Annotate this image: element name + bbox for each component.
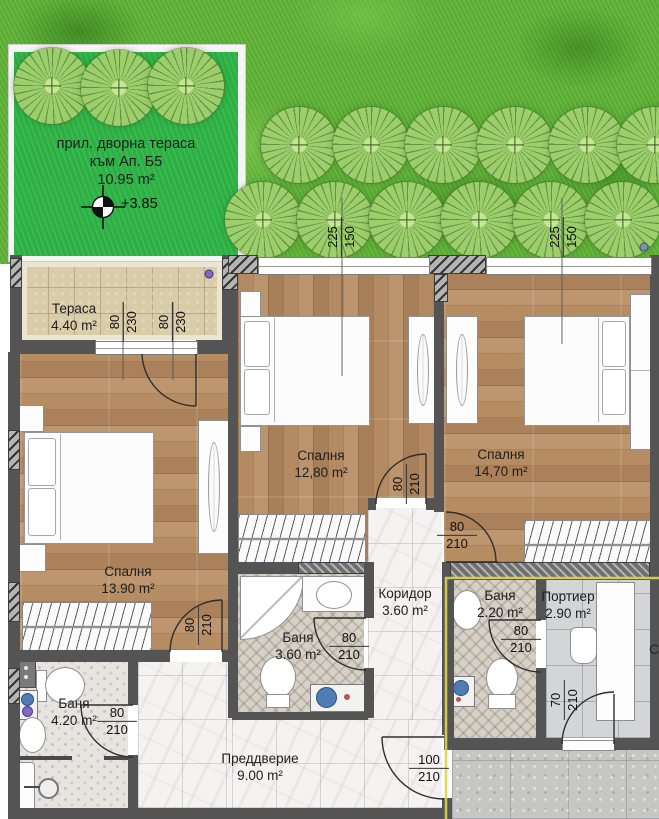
wall-segment bbox=[650, 255, 659, 750]
room-vestibule-left bbox=[138, 662, 232, 808]
knob-icon bbox=[21, 693, 34, 706]
tree-icon bbox=[369, 182, 445, 258]
room-label-bedroom-middle: Спалня12,80 m² bbox=[294, 448, 347, 482]
edge-cut-label: С bbox=[649, 641, 659, 657]
common-area bbox=[452, 750, 659, 819]
pillow bbox=[28, 488, 56, 536]
washer-drum-icon bbox=[316, 687, 337, 708]
wall-segment bbox=[364, 668, 374, 718]
floor-plan: прил. дворна тераса към Ап. Б5 10.95 m² … bbox=[0, 0, 659, 819]
wall-segment bbox=[10, 340, 96, 354]
chair bbox=[570, 627, 597, 664]
wall-segment bbox=[614, 738, 659, 750]
washer-drum-icon bbox=[453, 680, 469, 696]
tree-icon bbox=[441, 182, 517, 258]
room-label-bath-right: Баня2.20 m² bbox=[477, 588, 523, 622]
bed-divider bbox=[60, 434, 61, 540]
wall-segment bbox=[442, 692, 452, 735]
wall-segment bbox=[128, 662, 138, 705]
wall-cabinet bbox=[19, 660, 36, 688]
nightstand bbox=[18, 544, 46, 572]
wall-column bbox=[434, 274, 448, 302]
wall-segment bbox=[8, 808, 452, 819]
shower-head-icon bbox=[38, 778, 59, 799]
dim-bath-left-door: 80210 bbox=[97, 706, 137, 736]
dim-bedroom-middle-window: 225150 bbox=[326, 217, 356, 257]
wall-hatched-long bbox=[450, 562, 650, 580]
tree-icon bbox=[261, 107, 337, 183]
tree-icon bbox=[14, 48, 90, 124]
window-bedroom-middle bbox=[258, 257, 430, 275]
room-label-bath-middle: Баня3.60 m² bbox=[275, 630, 321, 664]
sink bbox=[19, 717, 46, 753]
dim-terrace-door: 80230 bbox=[108, 302, 138, 342]
tree-icon bbox=[81, 50, 157, 126]
dim-bedroom-right-window: 225150 bbox=[548, 217, 578, 257]
dim-terrace-window: 80230 bbox=[157, 302, 187, 342]
wall-segment bbox=[368, 498, 376, 510]
desk bbox=[596, 582, 635, 721]
room-label-corridor: Коридор3.60 m² bbox=[378, 586, 431, 620]
decor-leaf-icon bbox=[208, 442, 220, 532]
toilet-tank bbox=[488, 694, 516, 709]
door-threshold bbox=[562, 740, 616, 751]
tree-icon bbox=[617, 107, 659, 183]
bed-divider bbox=[598, 318, 599, 422]
wall-segment bbox=[364, 562, 374, 618]
room-label-terrace: Тераса4.40 m² bbox=[51, 301, 97, 335]
room-label-porter: Портиер2.90 m² bbox=[541, 589, 594, 623]
nightstand bbox=[18, 405, 44, 432]
room-label-vestibule: Преддверие9.00 m² bbox=[221, 751, 298, 785]
nightstand bbox=[240, 291, 261, 317]
wall-column bbox=[10, 258, 22, 288]
wall-segment bbox=[228, 352, 238, 718]
washer-knob-icon bbox=[456, 697, 461, 702]
dim-entry-door: 100210 bbox=[409, 753, 449, 783]
pillow bbox=[602, 321, 626, 367]
washer-knob-icon bbox=[344, 694, 350, 700]
shower-partition bbox=[104, 756, 130, 760]
dim-bedroom-left-door: 80210 bbox=[183, 605, 213, 645]
tree-icon bbox=[333, 107, 409, 183]
room-label-bedroom-right: Спалня14,70 m² bbox=[474, 447, 527, 481]
wardrobe bbox=[22, 602, 152, 652]
knob-icon bbox=[22, 706, 33, 717]
tree-icon bbox=[148, 48, 224, 124]
shower-partition bbox=[20, 756, 72, 760]
toilet bbox=[486, 658, 518, 698]
wall-segment bbox=[444, 738, 562, 750]
yard-terrace-label: прил. дворна тераса към Ап. Б5 10.95 m² bbox=[57, 135, 196, 189]
wall-column bbox=[8, 668, 20, 704]
dim-bath-middle-door: 80210 bbox=[329, 631, 369, 661]
shelf-line bbox=[631, 370, 651, 371]
dim-bedroom-right-door: 80210 bbox=[437, 520, 477, 550]
tree-icon bbox=[585, 182, 659, 258]
decor-leaf-icon bbox=[417, 334, 429, 406]
room-label-bedroom-left: Спалня13.90 m² bbox=[101, 564, 154, 598]
window-bedroom-right bbox=[486, 257, 652, 275]
tree-icon bbox=[477, 107, 553, 183]
pillow bbox=[244, 321, 270, 367]
wall-segment bbox=[232, 712, 368, 720]
window-terrace bbox=[95, 341, 198, 355]
sink bbox=[316, 581, 352, 609]
decor-leaf-icon bbox=[456, 334, 468, 406]
wall-segment bbox=[434, 274, 444, 512]
tree-icon bbox=[405, 107, 481, 183]
wall-segment bbox=[222, 650, 238, 662]
room-label-bath-left: Баня4.20 m² bbox=[51, 696, 97, 730]
toilet-tank bbox=[266, 694, 290, 708]
pillow bbox=[28, 438, 56, 486]
pillow bbox=[602, 369, 626, 415]
dim-bath-right-door: 80210 bbox=[501, 624, 541, 654]
elevation-label: +3.85 bbox=[121, 196, 158, 212]
wall-column bbox=[8, 582, 20, 622]
tree-icon bbox=[549, 107, 625, 183]
bed-divider bbox=[274, 318, 275, 422]
nightstand bbox=[240, 426, 261, 452]
wall-segment bbox=[8, 650, 170, 662]
shower-arm bbox=[24, 786, 40, 788]
wardrobe bbox=[238, 514, 366, 564]
wall-column bbox=[228, 255, 258, 274]
wall-column bbox=[298, 562, 368, 574]
wall-column bbox=[428, 255, 486, 274]
dim-porter-door: 70210 bbox=[549, 680, 579, 720]
wall-column bbox=[8, 430, 20, 470]
pillow bbox=[244, 369, 270, 415]
dim-bedroom-middle-door: 80210 bbox=[391, 464, 421, 504]
tree-icon bbox=[225, 182, 301, 258]
